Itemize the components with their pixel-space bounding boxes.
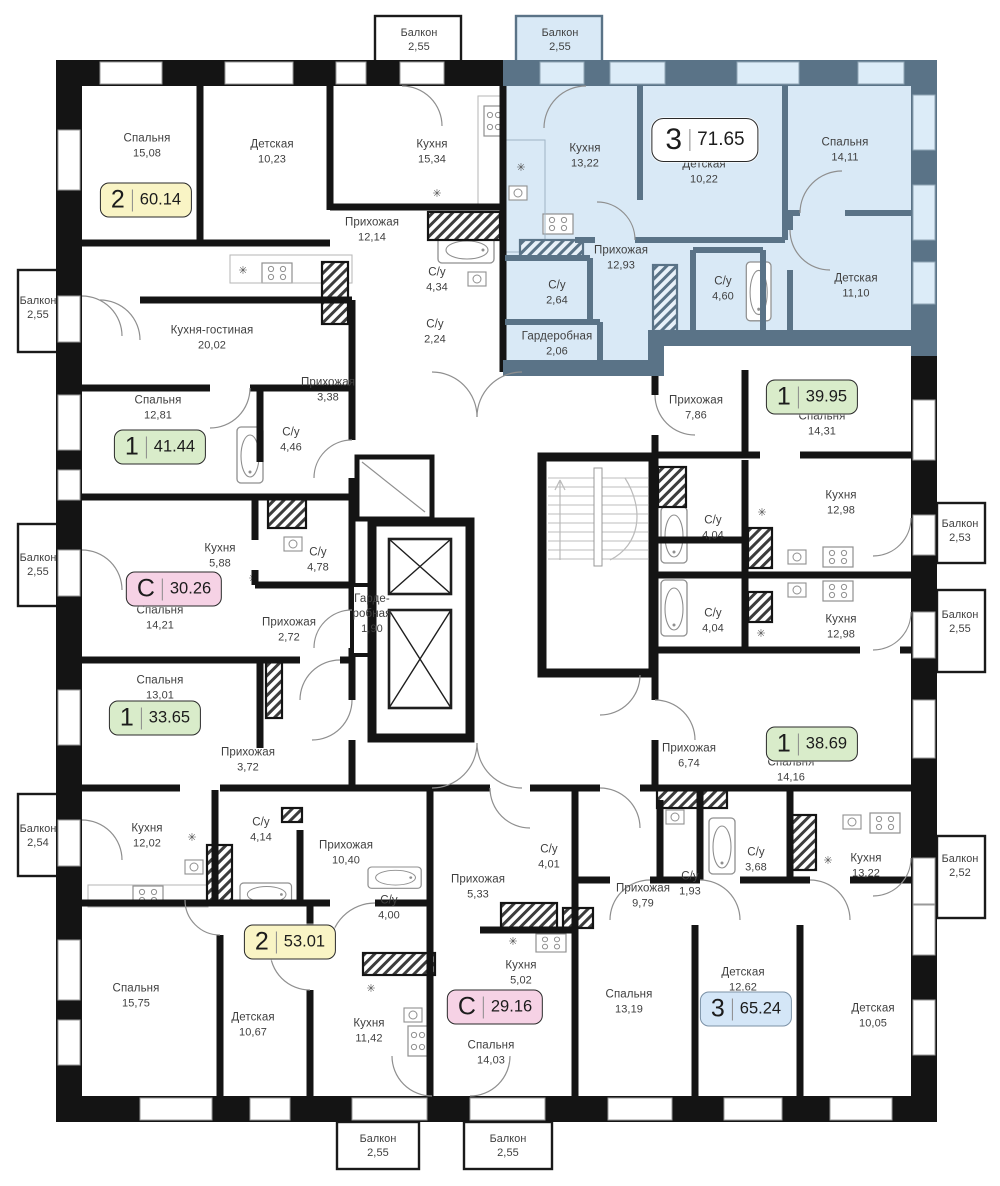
apartment-badge[interactable]: 365.24 [700, 992, 792, 1027]
room-label: С/у4,78 [307, 545, 329, 574]
apartment-badge[interactable]: 138.69 [766, 727, 858, 762]
balcony-label: Балкон2,55 [942, 608, 979, 636]
room-label: Детская10,67 [231, 1010, 274, 1039]
svg-text:✳: ✳ [366, 983, 375, 995]
room-label: Прихожая6,74 [662, 741, 716, 770]
room-label: Кухня-гостиная20,02 [171, 323, 254, 352]
room-label: С/у4,01 [538, 842, 560, 871]
room-label: Детская10,23 [250, 137, 293, 166]
apartment-badge-highlighted[interactable]: 371.65 [651, 118, 758, 162]
room-label: Балкон2,55 [542, 26, 579, 54]
balcony-label: Балкон2,52 [942, 852, 979, 880]
room-label: С/у4,04 [702, 513, 724, 542]
room-label: Прихожая10,40 [319, 838, 373, 867]
svg-text:✳: ✳ [238, 265, 247, 277]
room-label: Прихожая2,72 [262, 615, 316, 644]
room-label: Спальня14,11 [822, 135, 869, 164]
svg-text:✳: ✳ [187, 832, 196, 844]
room-label: Спальня15,75 [113, 981, 160, 1010]
balcony-label: Балкон2,53 [942, 517, 979, 545]
room-label: Спальня12,81 [135, 393, 182, 422]
balcony-label: Балкон2,55 [490, 1132, 527, 1160]
apartment-badge[interactable]: 139.95 [766, 380, 858, 415]
balcony-label: Балкон2,55 [360, 1132, 397, 1160]
room-label: С/у2,64 [546, 278, 568, 307]
room-label: Прихожая12,14 [345, 215, 399, 244]
stairwell [542, 457, 653, 673]
svg-text:✳: ✳ [432, 188, 441, 200]
room-label: С/у4,34 [426, 265, 448, 294]
room-label: С/у4,46 [280, 425, 302, 454]
room-label: Кухня15,34 [416, 137, 447, 166]
room-label: Прихожая3,72 [221, 745, 275, 774]
room-label: Гардеробная2,06 [522, 329, 593, 358]
svg-text:✳: ✳ [756, 628, 765, 640]
room-label: Кухня5,02 [505, 958, 536, 987]
room-label: Кухня12,98 [825, 612, 856, 641]
room-label: Кухня13,22 [850, 851, 881, 880]
svg-text:✳: ✳ [823, 855, 832, 867]
apartment-badge[interactable]: С29.16 [447, 990, 543, 1025]
room-label: С/у2,24 [424, 317, 446, 346]
room-label: Гарде- робная1,90 [353, 592, 392, 636]
room-label: Детская10,05 [851, 1001, 894, 1030]
room-label: Прихожая3,38 [301, 375, 355, 404]
balcony-label: Балкон2,54 [20, 822, 57, 850]
apartment-badge[interactable]: 260.14 [100, 183, 192, 218]
balcony-label: Балкон2,55 [401, 26, 438, 54]
room-label: Прихожая5,33 [451, 872, 505, 901]
room-label: Кухня13,22 [569, 141, 600, 170]
room-label: С/у4,04 [702, 606, 724, 635]
svg-text:✳: ✳ [757, 507, 766, 519]
balcony-label: Балкон2,55 [20, 294, 57, 322]
apartment-badge[interactable]: 133.65 [109, 701, 201, 736]
room-label: Спальня15,08 [124, 131, 171, 160]
room-label: С/у1,93 [679, 869, 701, 898]
room-label: Кухня12,98 [825, 488, 856, 517]
room-label: Спальня14,03 [468, 1038, 515, 1067]
room-label: С/у4,60 [712, 274, 734, 303]
room-label: Спальня14,21 [137, 603, 184, 632]
room-label: Детская11,10 [834, 271, 877, 300]
room-label: Спальня13,01 [137, 673, 184, 702]
balcony-label: Балкон2,55 [20, 551, 57, 579]
apartment-badge[interactable]: С30.26 [126, 572, 222, 607]
svg-text:✳: ✳ [508, 936, 517, 948]
room-label: Прихожая12,93 [594, 243, 648, 272]
apartment-badge[interactable]: 253.01 [244, 925, 336, 960]
room-label: Прихожая7,86 [669, 393, 723, 422]
apartment-badge[interactable]: 141.44 [114, 430, 206, 465]
room-label: С/у4,14 [250, 815, 272, 844]
room-label: Кухня11,42 [353, 1016, 384, 1045]
room-label: Прихожая9,79 [616, 881, 670, 910]
floor-plan: ✳✳✳ ✳✳✳ ✳✳✳ ✳ [0, 0, 1000, 1186]
svg-text:✳: ✳ [516, 162, 525, 174]
room-label: Кухня12,02 [131, 821, 162, 850]
room-label: С/у4,00 [378, 893, 400, 922]
room-label: С/у3,68 [745, 845, 767, 874]
room-label: Кухня5,88 [204, 541, 235, 570]
room-label: Спальня13,19 [606, 987, 653, 1016]
room-label: Детская12,62 [721, 965, 764, 994]
